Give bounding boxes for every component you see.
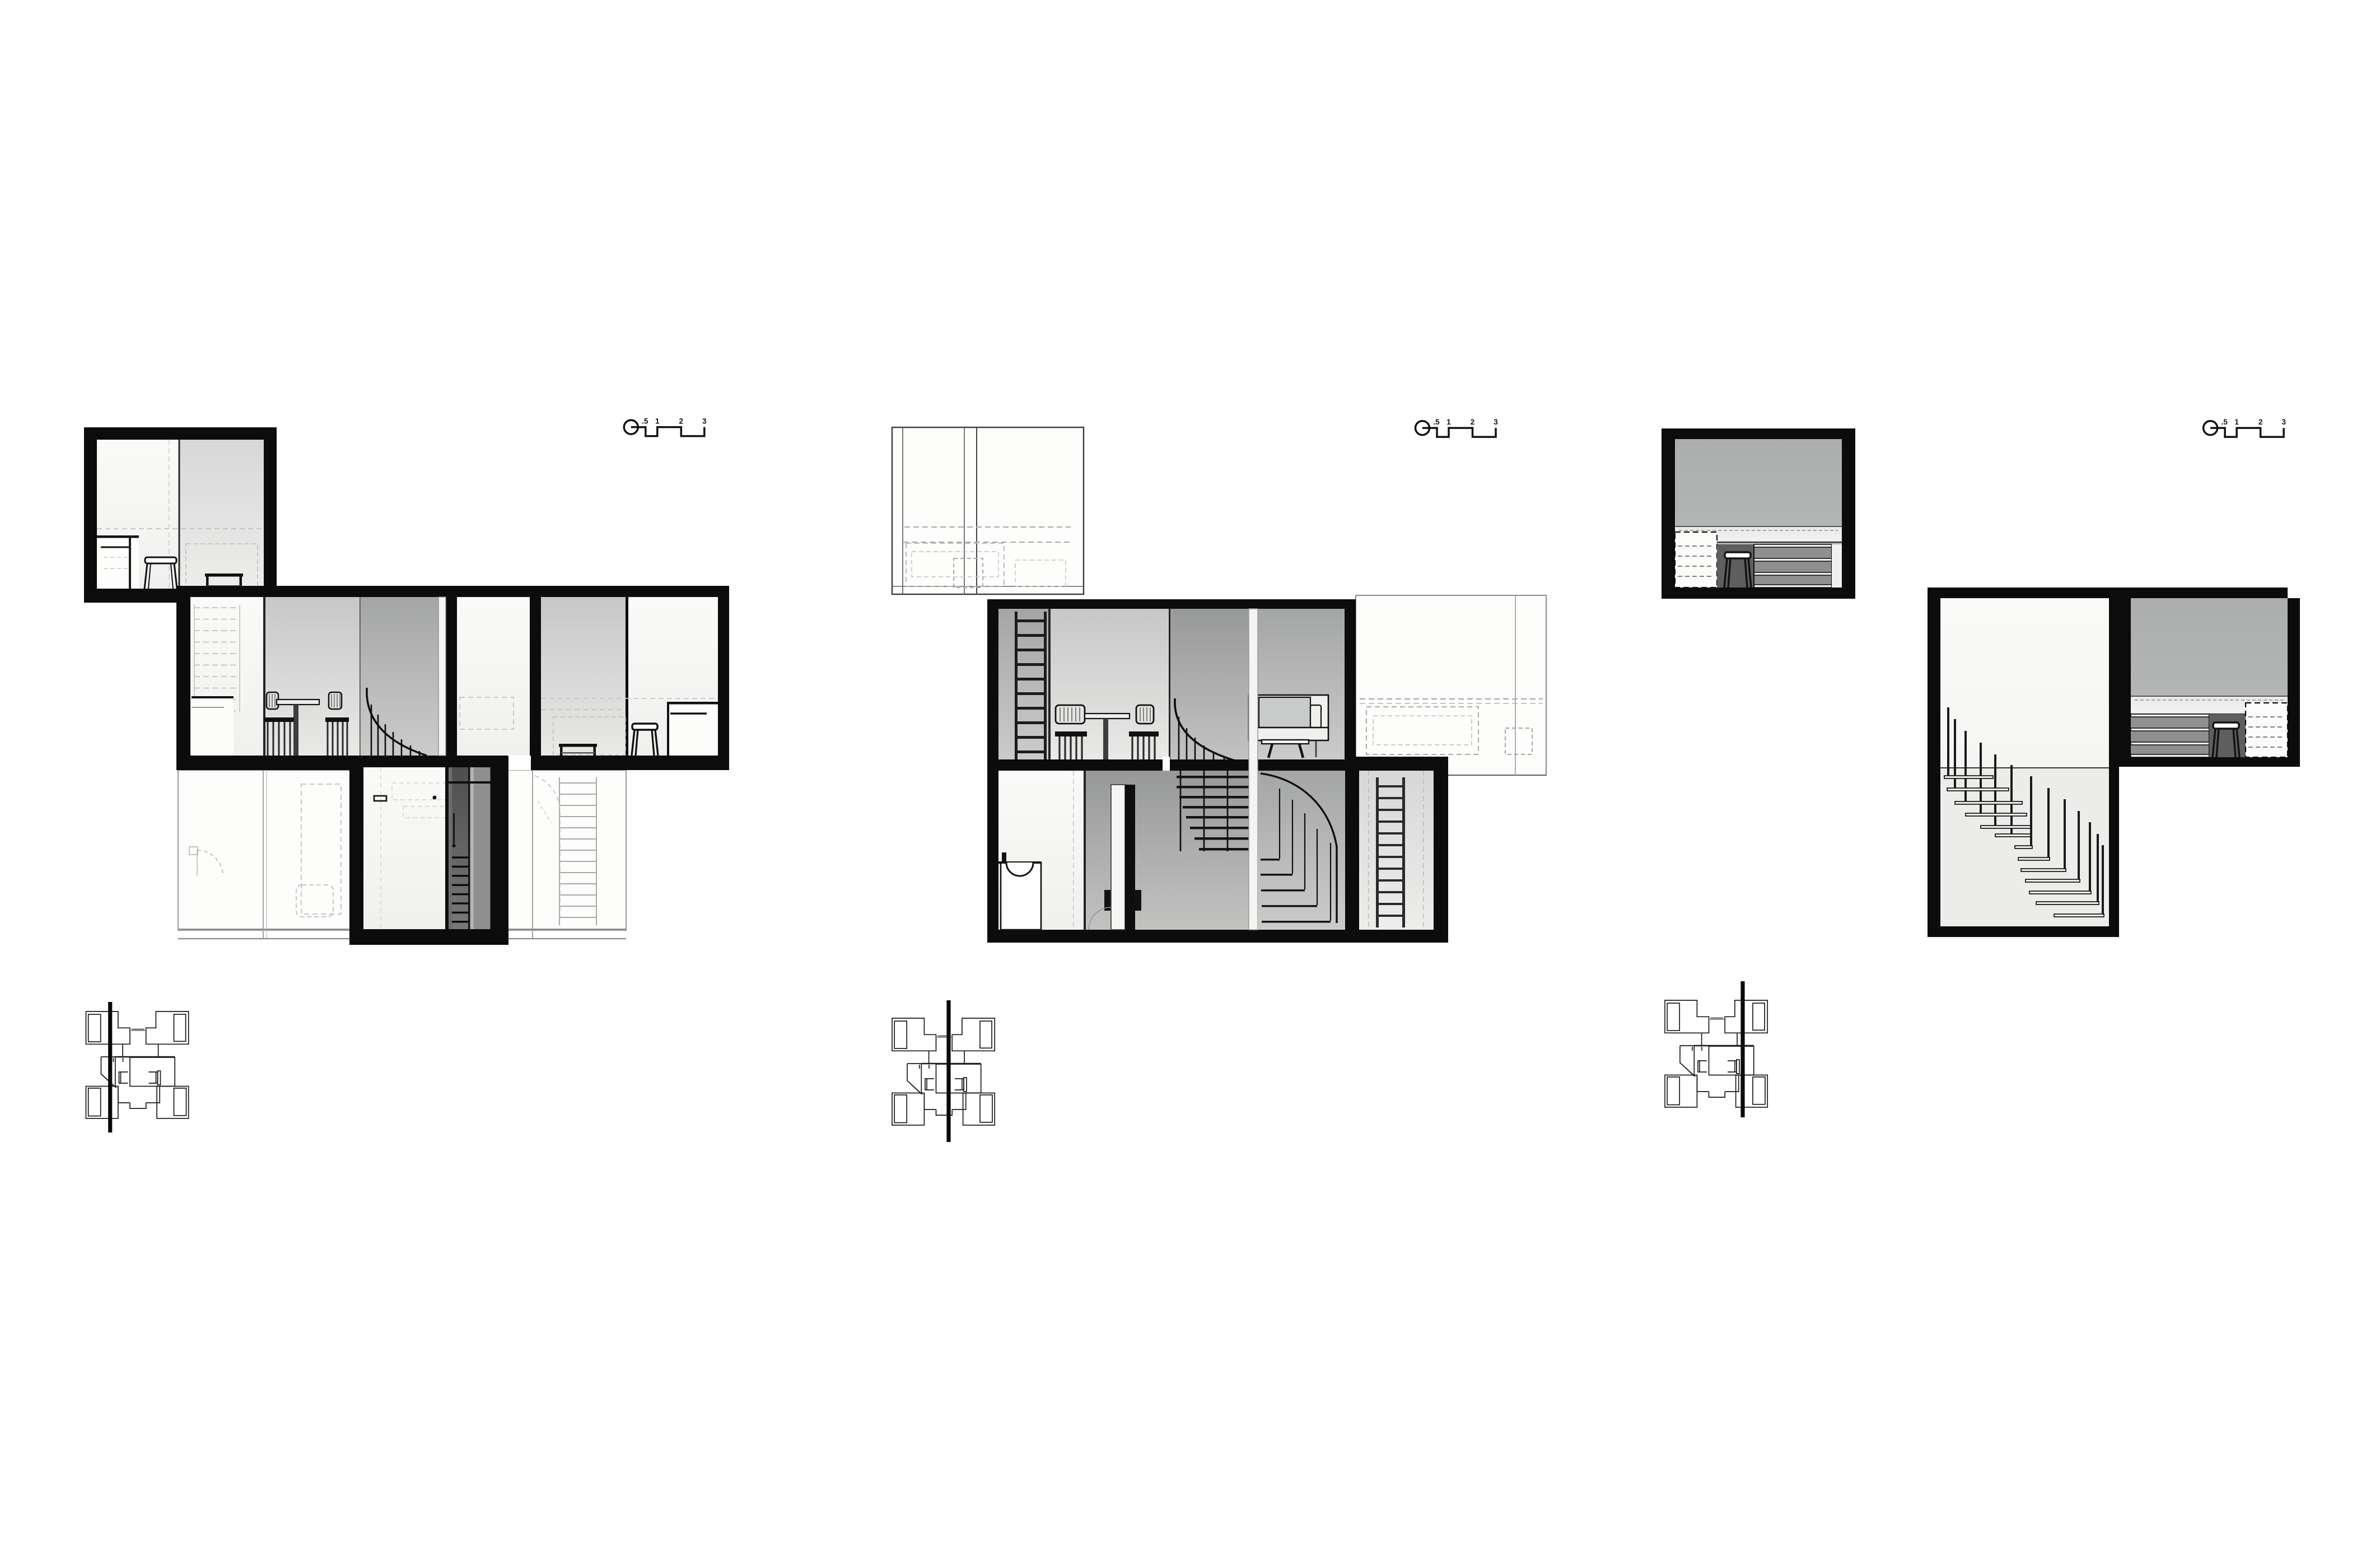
svg-text:.5: .5 [642, 417, 648, 426]
svg-text:2: 2 [2258, 418, 2263, 426]
svg-text:.5: .5 [2221, 418, 2228, 426]
svg-text:3: 3 [2281, 418, 2286, 426]
svg-text:1: 1 [655, 417, 660, 426]
svg-text:3: 3 [1494, 418, 1498, 426]
svg-text:1: 1 [2234, 418, 2239, 426]
svg-text:2: 2 [679, 417, 684, 426]
svg-text:1: 1 [1446, 418, 1451, 426]
svg-text:3: 3 [702, 417, 707, 426]
svg-text:.5: .5 [1433, 418, 1440, 426]
svg-text:2: 2 [1471, 418, 1475, 426]
